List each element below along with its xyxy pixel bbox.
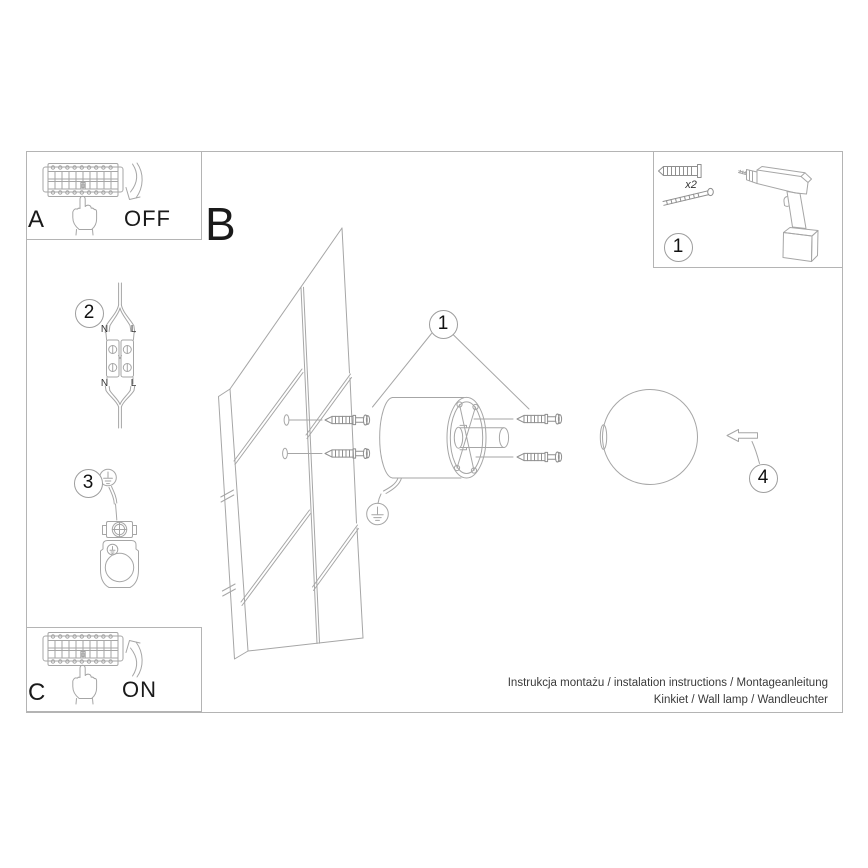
arrow-down-icon: [126, 163, 142, 200]
callout-badge-grounding: 3: [74, 469, 103, 498]
wall-plug-icon: [659, 165, 702, 178]
cable-clamp-drawing: [101, 487, 139, 588]
ground-symbol-icon: [367, 503, 389, 525]
callout-leader-lines: [373, 333, 760, 464]
glass-globe-drawing: [600, 390, 697, 485]
footer-text: Instrukcja montażu / instalation instruc…: [508, 675, 828, 709]
instruction-sheet: A OFF B C ON x2 1 1 2 3 4 N L N L Instru…: [0, 0, 868, 868]
callout-badge-kit: 1: [664, 233, 693, 262]
footer-line-product: Kinkiet / Wall lamp / Wandleuchter: [508, 692, 828, 709]
line-art-canvas: [0, 0, 868, 868]
panel-letter-a: A: [28, 206, 44, 234]
callout-badge-globe: 4: [749, 464, 778, 493]
anchor-screw-icon: [325, 414, 562, 462]
wall-drawing: [219, 228, 364, 659]
terminal-label-l-top: L: [125, 324, 142, 335]
lamp-base-drawing: [378, 397, 509, 503]
callout-badge-hardware: 1: [429, 310, 458, 339]
power-on-label: ON: [122, 677, 157, 703]
footer-line-instructions: Instrukcja montażu / instalation instruc…: [508, 675, 828, 692]
panel-letter-c: C: [28, 679, 45, 707]
quantity-label: x2: [682, 179, 700, 191]
terminal-label-n-top: N: [96, 324, 113, 335]
arrow-up-icon: [126, 641, 142, 678]
direction-arrow-icon: [727, 430, 758, 442]
wire-connector-drawing: [105, 283, 135, 428]
terminal-label-l-bottom: L: [125, 378, 142, 389]
section-letter-b: B: [205, 197, 236, 251]
terminal-label-n-bottom: N: [96, 378, 113, 389]
power-off-label: OFF: [124, 206, 171, 232]
drill-icon: [739, 167, 819, 262]
